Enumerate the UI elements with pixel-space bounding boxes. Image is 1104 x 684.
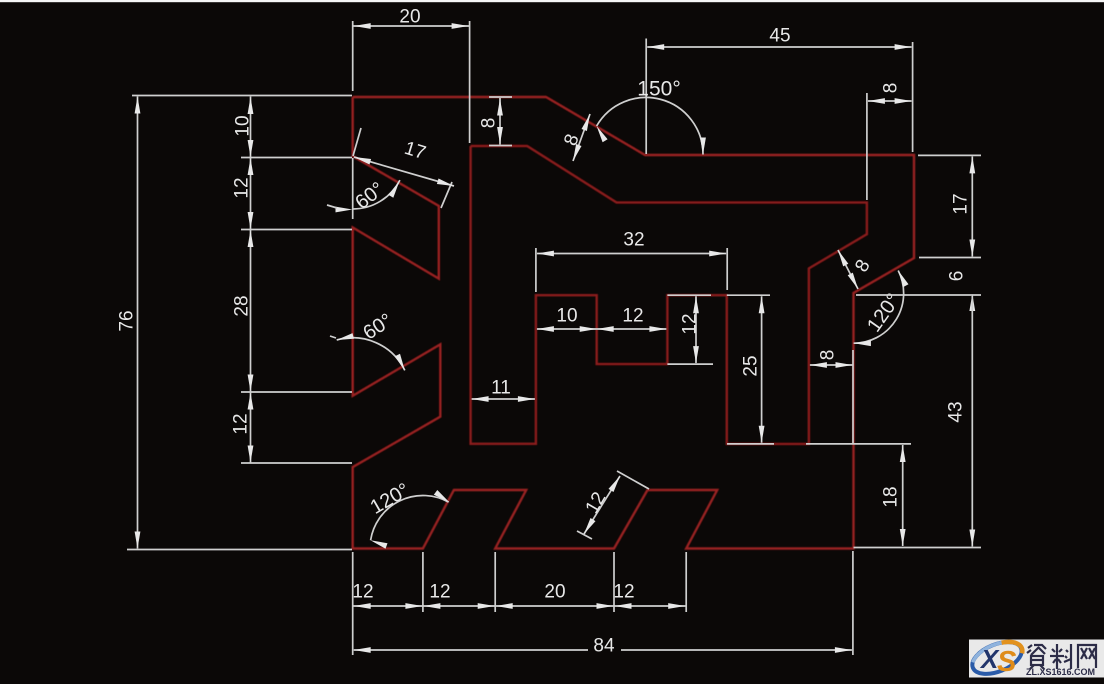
svg-text:ZL.XS1616.COM: ZL.XS1616.COM xyxy=(1026,667,1095,677)
svg-text:45: 45 xyxy=(769,26,790,47)
svg-text:11: 11 xyxy=(491,378,511,399)
svg-text:6: 6 xyxy=(947,271,968,282)
svg-text:17: 17 xyxy=(951,193,972,214)
svg-text:10: 10 xyxy=(233,115,254,136)
svg-text:8: 8 xyxy=(881,83,902,94)
svg-text:12: 12 xyxy=(680,313,701,334)
svg-text:28: 28 xyxy=(232,295,253,316)
svg-text:32: 32 xyxy=(623,230,644,251)
svg-text:12: 12 xyxy=(613,582,634,603)
svg-text:120°: 120° xyxy=(863,290,905,337)
svg-text:12: 12 xyxy=(582,489,611,518)
svg-text:20: 20 xyxy=(544,582,565,603)
svg-text:76: 76 xyxy=(117,310,138,331)
svg-text:84: 84 xyxy=(593,636,615,657)
svg-text:8: 8 xyxy=(851,256,874,276)
svg-text:12: 12 xyxy=(622,306,643,327)
svg-text:20: 20 xyxy=(399,7,420,28)
svg-text:8: 8 xyxy=(818,350,839,361)
svg-text:S: S xyxy=(997,646,1017,678)
svg-text:8: 8 xyxy=(560,131,583,148)
svg-text:10: 10 xyxy=(556,306,577,327)
svg-text:12: 12 xyxy=(352,582,373,603)
svg-text:18: 18 xyxy=(881,486,902,507)
svg-text:17: 17 xyxy=(402,138,428,164)
svg-text:25: 25 xyxy=(741,355,762,376)
svg-text:12: 12 xyxy=(232,177,253,198)
svg-text:8: 8 xyxy=(479,118,500,129)
svg-text:120°: 120° xyxy=(367,479,414,519)
svg-text:12: 12 xyxy=(429,582,450,603)
svg-text:150°: 150° xyxy=(637,78,680,101)
svg-text:43: 43 xyxy=(946,401,967,422)
svg-text:12: 12 xyxy=(231,413,252,434)
